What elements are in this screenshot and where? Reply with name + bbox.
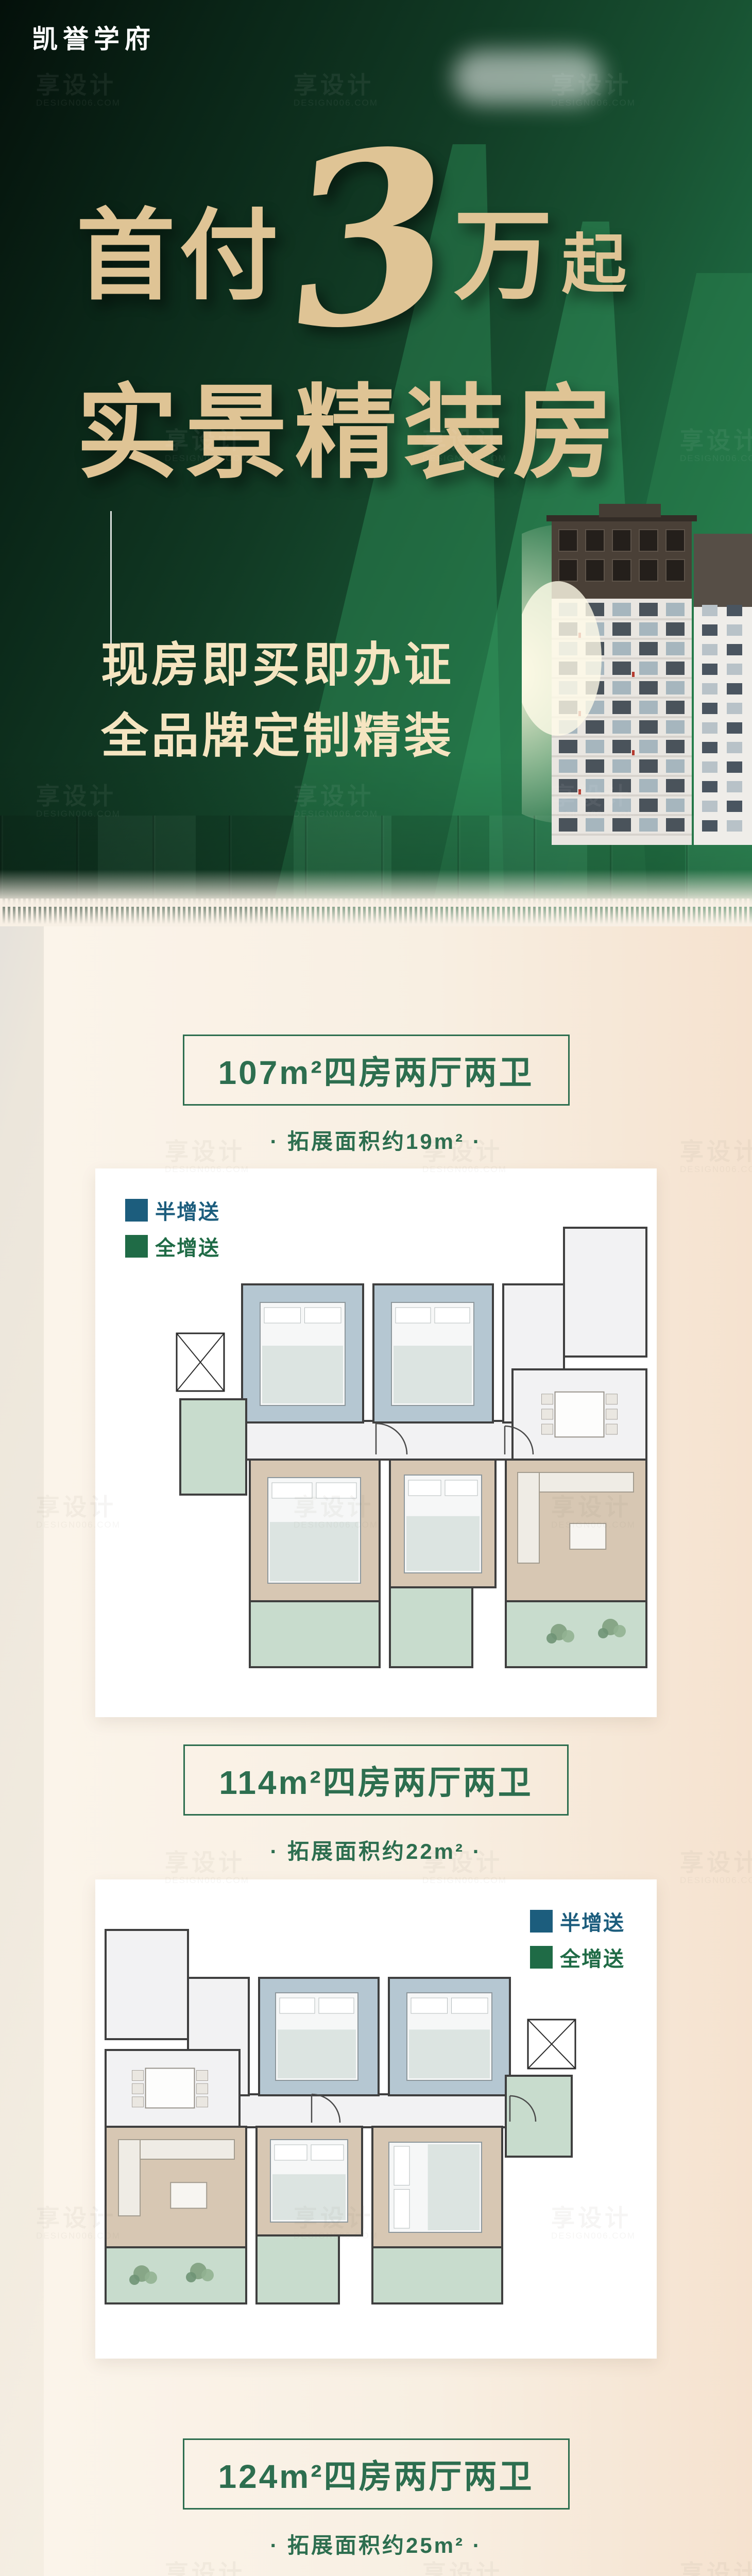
hero-comb-fringe <box>0 899 752 926</box>
headline-suffix: 起 <box>562 232 627 297</box>
section3-title: 124m²四房两厅两卫 <box>0 2438 752 2510</box>
project-logo: 凯誉学府 <box>32 19 156 56</box>
body-line2: 全品牌定制精装 <box>101 701 454 772</box>
section1-title: 107m²四房两厅两卫 <box>0 1035 752 1106</box>
body-line1: 现房即买即办证 <box>101 630 454 701</box>
floorplan-card-107: 半增送 全增送 <box>95 1168 657 1717</box>
hero-banner: 凯誉学府 首付3万起 实景精装房 现房即买即办证 全品牌定制精装 <box>0 0 752 926</box>
legend-full-label: 全增送 <box>155 1231 220 1261</box>
legend-half-swatch <box>530 1910 553 1933</box>
legend-full-row: 全增送 <box>530 1942 625 1972</box>
headline-line2: 实景精装房 <box>76 382 622 484</box>
headline-unit: 万 <box>454 207 553 306</box>
section2-subtitle: · 拓展面积约22m² · <box>0 1834 752 1866</box>
building-photo <box>522 504 752 845</box>
legend-half-row: 半增送 <box>530 1906 625 1936</box>
plan-legend: 半增送 全增送 <box>125 1195 220 1261</box>
headline-prefix: 首付 <box>76 207 282 306</box>
poster: 凯誉学府 首付3万起 实景精装房 现房即买即办证 全品牌定制精装 107m²四房… <box>0 0 752 2576</box>
legend-half-label: 半增送 <box>155 1195 220 1225</box>
section3-title-box: 124m²四房两厅两卫 <box>183 2438 570 2510</box>
section2-title: 114m²四房两厅两卫 <box>0 1744 752 1816</box>
plan-legend: 半增送 全增送 <box>530 1906 625 1972</box>
blurred-developer-logo <box>453 50 603 104</box>
section2-title-box: 114m²四房两厅两卫 <box>183 1744 568 1816</box>
headline-line1: 首付3万起 <box>76 138 627 306</box>
legend-half-row: 半增送 <box>125 1195 220 1225</box>
legend-full-swatch <box>530 1946 553 1969</box>
hero-body-text: 现房即买即办证 全品牌定制精装 <box>101 630 454 772</box>
headline-number: 3 <box>281 147 459 331</box>
legend-full-row: 全增送 <box>125 1231 220 1261</box>
section1-subtitle: · 拓展面积约19m² · <box>0 1124 752 1156</box>
floorplan-card-114: 半增送 全增送 <box>95 1879 657 2359</box>
legend-half-swatch <box>125 1199 148 1222</box>
legend-full-swatch <box>125 1235 148 1258</box>
legend-full-label: 全增送 <box>560 1942 625 1972</box>
section1-title-box: 107m²四房两厅两卫 <box>183 1035 570 1106</box>
section3-subtitle: · 拓展面积约25m² · <box>0 2528 752 2560</box>
legend-half-label: 半增送 <box>560 1906 625 1936</box>
